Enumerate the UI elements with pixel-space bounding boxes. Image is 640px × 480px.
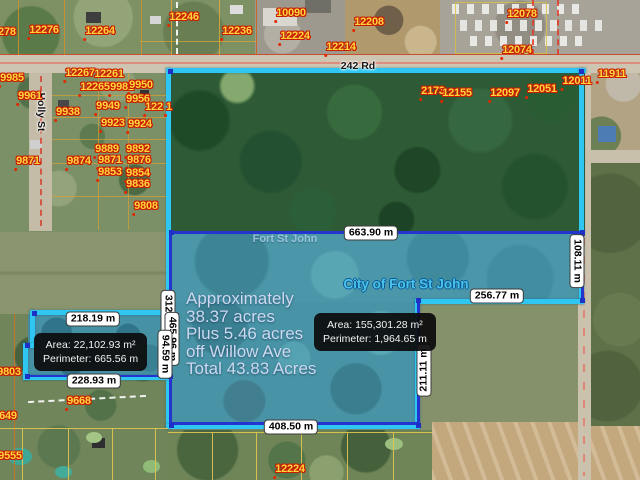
vertex-dot xyxy=(169,230,174,235)
lot-line xyxy=(112,428,113,480)
area-value: Area: 22,102.93 m² xyxy=(43,338,138,352)
parcel-label: 9950 xyxy=(129,79,153,91)
lot-line xyxy=(393,432,394,480)
main-road-center-line xyxy=(0,62,640,64)
parcel-label: 9836 xyxy=(126,178,150,190)
measurement-label: 256.77 m xyxy=(470,289,524,304)
lot-line xyxy=(52,196,166,197)
area-value: Area: 155,301.28 m² xyxy=(323,318,427,332)
boundary-top xyxy=(166,68,586,73)
parcel-label: 9949 xyxy=(96,100,120,112)
parcel-label: 9871 xyxy=(98,154,122,166)
parcel-label: 12224 xyxy=(275,463,305,475)
parcel-label: 12267 xyxy=(65,67,95,79)
parcel-label: 9649 xyxy=(0,410,17,422)
parcel-label: 9555 xyxy=(0,450,22,462)
parcel-label: 12264 xyxy=(85,25,115,37)
lot-line xyxy=(219,0,220,55)
vertex-dot xyxy=(580,298,585,303)
parcel-label: 12051 xyxy=(527,83,557,95)
golf-green xyxy=(86,432,102,443)
subject-forest-area xyxy=(166,71,585,236)
parcel-label: 122 xyxy=(145,101,163,113)
lot-line xyxy=(52,139,166,140)
parcel-label: 9853 xyxy=(98,166,122,178)
vertex-dot xyxy=(32,311,37,316)
right-side-road xyxy=(585,150,640,163)
region-left-fields xyxy=(0,232,168,314)
parcel-label: 12276 xyxy=(29,24,59,36)
measurement-label: 108.11 m xyxy=(570,234,585,288)
parcel-label: 12261 xyxy=(94,68,124,80)
aerial-map-canvas[interactable]: 663.90 m 218.19 m 228.93 m 256.77 m 408.… xyxy=(0,0,640,480)
building xyxy=(86,12,101,23)
parcel-label: 12155 xyxy=(442,87,472,99)
annotation-line: Approximately xyxy=(186,290,316,308)
measurement-label: 408.50 m xyxy=(264,420,318,435)
parcel-label: 12097 xyxy=(490,87,520,99)
lot-line xyxy=(141,0,142,55)
survey-dash-line xyxy=(557,0,559,55)
measurement-label: 94.59 m xyxy=(158,330,173,379)
lot-line xyxy=(347,432,348,480)
parcel-label: 10090 xyxy=(276,7,306,19)
lot-line xyxy=(256,432,257,480)
vertex-dot xyxy=(416,423,421,428)
vertex-dot xyxy=(579,69,584,74)
parcel-label: 9871 xyxy=(16,155,40,167)
area-info-box: Area: 155,301.28 m² Perimeter: 1,964.65 … xyxy=(314,313,436,351)
parcel-label: 11911 xyxy=(598,68,626,80)
building xyxy=(150,16,161,24)
lot-line xyxy=(140,41,258,42)
parcel-label: 9938 xyxy=(56,106,80,118)
lot-line xyxy=(0,428,168,429)
parcel-label: 12214 xyxy=(326,41,356,53)
perimeter-value: Perimeter: 665.56 m xyxy=(43,352,138,366)
lot-line xyxy=(64,0,65,55)
parcel-label: 9924 xyxy=(128,118,152,130)
annotation-line: off Willow Ave xyxy=(186,343,316,361)
region-top-dirt xyxy=(345,0,442,58)
parcel-label: 9876 xyxy=(127,154,151,166)
parcel-label: 12265 xyxy=(80,81,110,93)
annotation-line: Plus 5.46 acres xyxy=(186,325,316,343)
lot-line xyxy=(256,0,257,55)
place-label: Fort St John xyxy=(253,233,318,245)
vertex-dot xyxy=(25,343,30,348)
parcel-label: 12074 xyxy=(502,44,532,56)
parcel-label: 12208 xyxy=(354,16,384,28)
building xyxy=(305,0,331,13)
acreage-annotation: Approximately 38.37 acres Plus 5.46 acre… xyxy=(186,290,316,378)
measurement-label: 218.19 m xyxy=(66,312,120,327)
lot-line xyxy=(171,0,172,55)
vertex-dot xyxy=(169,423,174,428)
building xyxy=(230,5,243,14)
lot-line xyxy=(18,0,19,55)
perimeter-value: Perimeter: 1,964.65 m xyxy=(323,332,427,346)
lot-line xyxy=(212,432,213,480)
golf-green xyxy=(143,460,160,473)
survey-dash-line xyxy=(176,2,178,54)
parcel-label: 9803 xyxy=(0,366,21,378)
lot-line xyxy=(155,428,156,480)
parcel-label: 12011 xyxy=(563,75,592,87)
parcel-label: 9874 xyxy=(67,155,91,167)
main-road-edge-line xyxy=(0,54,640,55)
parcel-label: 12246 xyxy=(169,11,199,23)
city-boundary-label: City of Fort St John xyxy=(343,277,468,292)
measurement-label: 228.93 m xyxy=(67,374,121,389)
region-right-field xyxy=(590,160,640,426)
road-label-242: 242 Rd xyxy=(341,60,375,72)
lot-line xyxy=(68,428,69,480)
vertex-dot xyxy=(416,298,421,303)
parcel-label: 12278 xyxy=(0,26,16,38)
parcel-label: 9985 xyxy=(0,72,24,84)
measurement-label: 211.11 m xyxy=(417,343,432,396)
parcel-label: 9808 xyxy=(134,200,158,212)
annotation-line: Total 43.83 Acres xyxy=(186,360,316,378)
parcel-label: 9923 xyxy=(101,117,125,129)
pond xyxy=(55,466,72,478)
measurement-label: 663.90 m xyxy=(344,226,398,241)
building-blue-roof xyxy=(598,126,616,142)
parcel-label: 12224 xyxy=(280,30,310,42)
parcel-label: 9668 xyxy=(67,395,91,407)
parcel-label: 12236 xyxy=(222,25,252,37)
parcel-label: 12078 xyxy=(507,8,537,20)
parcel-label: 9961 xyxy=(18,90,42,102)
golf-green xyxy=(385,438,403,450)
parcel-label: 1 xyxy=(166,101,172,113)
vertex-dot xyxy=(168,69,173,74)
area-info-box: Area: 22,102.93 m² Perimeter: 665.56 m xyxy=(34,333,147,371)
annotation-line: 38.37 acres xyxy=(186,308,316,326)
region-bottom-right-field xyxy=(432,422,640,480)
vertex-dot xyxy=(25,374,30,379)
